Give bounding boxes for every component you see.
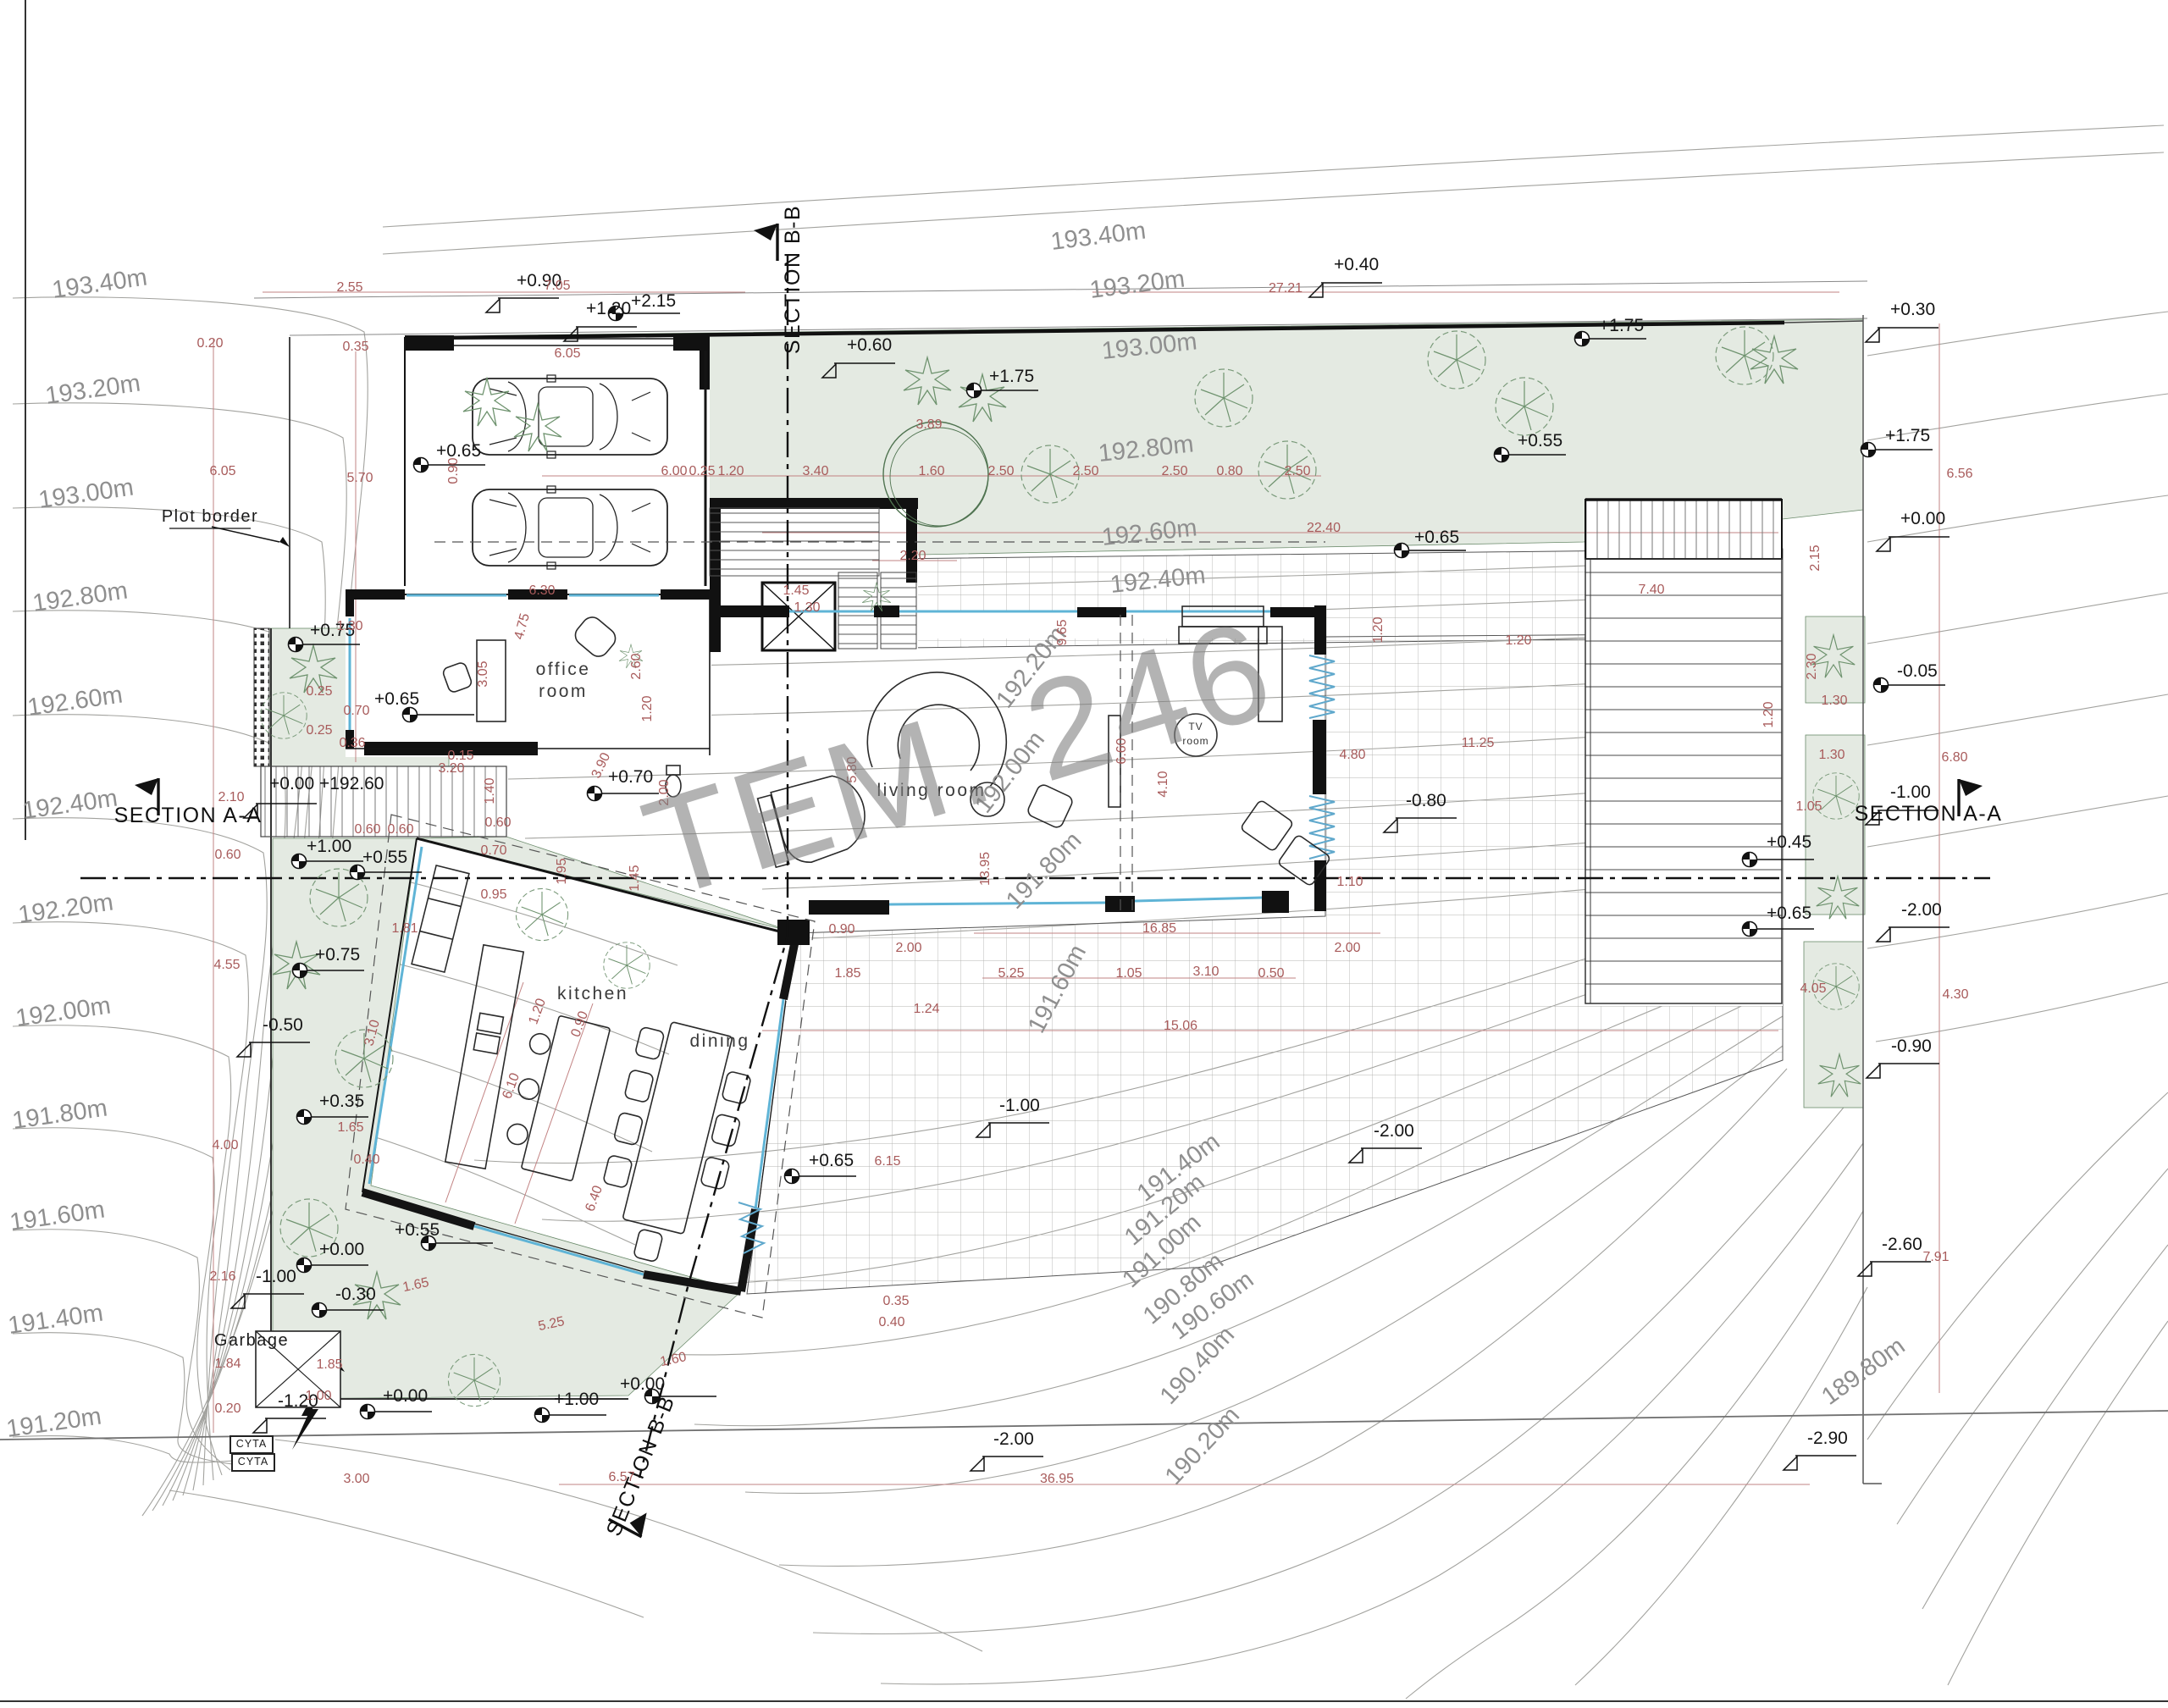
dim-label: 1.30 — [1821, 694, 1847, 708]
dim-label: 2.30 — [1805, 653, 1819, 679]
contour-label: 191.80m — [11, 1095, 109, 1135]
dim-label: 1.30 — [1818, 748, 1844, 762]
spot-label: +0.00 — [319, 1240, 364, 1259]
spot-label: -0.05 — [1897, 661, 1938, 681]
dim-label: 6.56 — [1946, 467, 1972, 481]
dim-label: 3.00 — [343, 1472, 369, 1486]
room-label: office — [536, 660, 591, 679]
dim-label: 0.60 — [214, 848, 241, 862]
contour-label: 191.60m — [8, 1197, 107, 1236]
spot-label: +0.45 — [1767, 832, 1811, 852]
dim-label: 1.95 — [555, 858, 569, 884]
spot-label: +0.60 — [847, 335, 892, 355]
dim-label: 0.70 — [480, 843, 506, 858]
dim-label: 6.05 — [554, 346, 580, 361]
dim-label: 0.90 — [568, 1009, 591, 1039]
dim-label: 1.30 — [794, 600, 820, 615]
dim-label: 0.60 — [387, 822, 413, 837]
dim-label: 1.20 — [1371, 616, 1385, 643]
dim-label: 0.95 — [480, 887, 506, 902]
dim-label: 0.70 — [343, 704, 369, 718]
kitchen-island — [500, 1010, 610, 1181]
dim-label: 2.10 — [218, 790, 244, 804]
dim-label: 3.20 — [438, 761, 464, 776]
dim-label: 2.55 — [336, 280, 362, 295]
spot-label: +0.75 — [315, 945, 360, 965]
dim-label: 3.10 — [1192, 965, 1219, 979]
tri-marker — [1309, 283, 1382, 297]
section-label: SECTION A-A — [1855, 802, 2003, 826]
spot-label: +0.00 — [383, 1386, 428, 1406]
dim-label: 22.40 — [1307, 521, 1341, 535]
dim-label: 3.89 — [915, 417, 942, 432]
dim-label: 0.40 — [878, 1315, 904, 1329]
dim-label: 0.50 — [1258, 966, 1284, 981]
armchair — [1240, 799, 1293, 852]
spot-label: +0.55 — [1518, 431, 1562, 450]
spot-label: -0.90 — [1891, 1036, 1932, 1056]
dim-label: 1.81 — [391, 921, 418, 936]
target-marker — [535, 1408, 607, 1423]
section-label: SECTION A-A — [114, 804, 263, 827]
dim-label: 2.00 — [1334, 941, 1360, 955]
dim-label: 27.21 — [1269, 281, 1302, 296]
dim-label: 16.85 — [1142, 921, 1176, 936]
tri-marker — [1877, 927, 1950, 942]
dim-label: 1.40 — [483, 777, 497, 804]
spot-label: +0.65 — [1414, 528, 1459, 547]
dim-label: 4.30 — [1942, 987, 1968, 1002]
spot-label: +0.00 — [1900, 509, 1945, 528]
dim-label: 1.10 — [1336, 875, 1363, 889]
note-label: Plot border — [162, 507, 258, 526]
spot-label: +0.65 — [374, 689, 419, 709]
spot-label: +0.55 — [362, 848, 407, 867]
tag-label: CYTA — [238, 1456, 268, 1468]
dim-label: 1.30 — [336, 619, 362, 633]
dim-label: 0.35 — [882, 1294, 909, 1308]
dim-label: 6.80 — [1941, 750, 1967, 765]
dim-label: 7.05 — [544, 279, 570, 293]
dim-label: 1.20 — [1761, 701, 1776, 727]
spot-label: +2.15 — [631, 291, 676, 311]
dim-label: 0.90 — [446, 457, 461, 484]
dim-label: 0.60 — [354, 822, 380, 837]
spot-label: +0.35 — [319, 1092, 364, 1111]
spot-label: +1.20 — [586, 299, 631, 318]
dim-label: 3.40 — [802, 464, 828, 478]
dim-label: 0.20 — [196, 336, 223, 351]
spot-label: +1.00 — [554, 1390, 599, 1409]
spot-label: -1.00 — [256, 1267, 296, 1286]
dim-label: 0.36 — [339, 736, 365, 750]
spot-label: +1.75 — [1885, 426, 1930, 445]
dim-label: 1.20 — [526, 997, 549, 1026]
sink — [473, 1033, 500, 1054]
spot-label: -0.30 — [335, 1285, 376, 1304]
dim-label: 0.35 — [342, 340, 368, 354]
dim-label: 1.20 — [717, 464, 744, 478]
contour-label: 191.80m — [1001, 826, 1087, 914]
dim-label: 1.84 — [214, 1357, 241, 1371]
contour-label: 193.20m — [1088, 265, 1186, 304]
dim-label: 1.65 — [337, 1120, 363, 1135]
dim-label: 4.55 — [213, 958, 240, 972]
contour-label: 190.40m — [1155, 1321, 1240, 1409]
dim-label: 1.20 — [640, 695, 655, 721]
tri-marker — [1867, 1064, 1939, 1078]
spot-label: +0.40 — [1334, 255, 1379, 274]
dim-label: 15.06 — [1164, 1019, 1197, 1033]
dim-label: 2.50 — [987, 464, 1014, 478]
dim-label: 6.15 — [874, 1154, 900, 1169]
spot-label: -1.00 — [1890, 782, 1931, 802]
contour-label: 190.20m — [1160, 1401, 1245, 1490]
contour-label: 193.40m — [1049, 217, 1148, 256]
spot-label: +1.75 — [989, 367, 1034, 386]
dim-label: 7.91 — [1922, 1250, 1949, 1264]
dim-label: 1.20 — [1505, 633, 1531, 648]
spot-label: -2.00 — [1901, 900, 1942, 920]
dim-label: 1.00 — [305, 1389, 331, 1403]
dim-label: 6.57 — [608, 1470, 634, 1484]
dim-label: 0.25 — [306, 684, 332, 699]
contour-label: 191.40m — [7, 1300, 105, 1340]
dim-label: 4.80 — [1339, 748, 1365, 762]
spot-label: -1.00 — [999, 1096, 1040, 1115]
room-label: room — [539, 682, 588, 701]
dim-label: 2.16 — [209, 1269, 235, 1284]
dim-label: 1.45 — [628, 865, 642, 891]
dim-label: 6.40 — [583, 1184, 606, 1213]
dim-label: 0.80 — [1216, 464, 1242, 478]
dim-label: 1.24 — [913, 1002, 939, 1016]
dim-label: 0.60 — [484, 815, 511, 830]
dim-label: 2.20 — [899, 549, 926, 563]
dim-label: 5.25 — [998, 966, 1024, 981]
spot-label: +0.00 — [620, 1374, 665, 1394]
dim-label: 13.95 — [978, 852, 993, 886]
tri-marker — [971, 1456, 1043, 1471]
dim-label: 3.05 — [476, 661, 490, 687]
site-plan-canvas: 193.40m193.20m193.00m192.80m192.60m192.4… — [0, 0, 2168, 1708]
spot-label: +0.65 — [809, 1151, 854, 1170]
dim-label: 0.90 — [828, 922, 854, 937]
upper-cabinets — [412, 865, 469, 972]
flag-marker — [754, 224, 777, 261]
room-label: dining — [689, 1031, 749, 1051]
spot-label: -0.50 — [263, 1015, 303, 1035]
floor-plan-sheet: 193.40m193.20m193.00m192.80m192.60m192.4… — [0, 0, 2168, 1708]
spot-label: +0.55 — [395, 1220, 440, 1240]
dim-label: 2.50 — [1072, 464, 1098, 478]
spot-label: +0.30 — [1890, 300, 1935, 319]
tri-marker — [486, 298, 559, 312]
dim-label: 2.15 — [1808, 544, 1822, 571]
spot-label: +1.00 — [307, 837, 351, 856]
spot-label: -2.60 — [1882, 1235, 1922, 1254]
tri-marker — [1784, 1456, 1856, 1470]
dim-label: 4.00 — [212, 1138, 238, 1152]
dim-label: 0.25 — [306, 723, 332, 738]
spot-label: +0.65 — [1767, 904, 1811, 923]
room-label: kitchen — [557, 984, 628, 1003]
dim-label: 7.40 — [1638, 583, 1664, 597]
tag-label: CYTA — [236, 1438, 267, 1450]
dim-label: 2.50 — [1284, 464, 1310, 478]
section-label: SECTION B-B — [781, 205, 805, 354]
dim-label: 2.60 — [629, 653, 644, 679]
spot-label: -2.00 — [1374, 1121, 1414, 1141]
tri-marker — [253, 1418, 326, 1433]
dim-label: 36.95 — [1040, 1472, 1074, 1486]
spot-label: +0.00 +192.60 — [269, 774, 384, 793]
spot-label: -2.00 — [993, 1429, 1034, 1449]
dim-label: 2.50 — [1161, 464, 1187, 478]
dim-label: 0.40 — [353, 1152, 379, 1167]
dim-label: 1.85 — [316, 1357, 342, 1372]
kitchen-counter — [445, 945, 523, 1169]
tri-marker — [1866, 328, 1938, 342]
dim-label: 0.25 — [689, 464, 715, 478]
dim-label: 9.65 — [1055, 619, 1070, 645]
dim-label: 11.25 — [1462, 736, 1495, 750]
dim-label: 1.05 — [1115, 966, 1142, 981]
note-label: Garbage — [214, 1331, 289, 1350]
dim-label: 1.05 — [1795, 799, 1822, 814]
spot-label: -2.90 — [1807, 1429, 1848, 1448]
tri-marker — [1858, 1262, 1931, 1276]
dim-label: 6.05 — [209, 464, 235, 478]
dim-label: 6.30 — [528, 583, 555, 598]
dim-label: 6.00 — [661, 464, 687, 478]
dim-label: 4.05 — [1800, 981, 1826, 996]
dim-label: 5.70 — [346, 471, 373, 485]
dim-label: 0.20 — [214, 1401, 241, 1416]
dim-label: 1.45 — [783, 583, 809, 598]
target-marker — [361, 1405, 433, 1419]
dim-label: 2.00 — [895, 941, 921, 955]
spot-label: +1.75 — [1599, 316, 1644, 335]
sink — [477, 1013, 503, 1034]
spot-label: -0.80 — [1406, 791, 1446, 810]
tri-marker — [1877, 537, 1950, 551]
dim-label: 1.85 — [834, 966, 860, 981]
dim-label: 1.60 — [918, 464, 944, 478]
